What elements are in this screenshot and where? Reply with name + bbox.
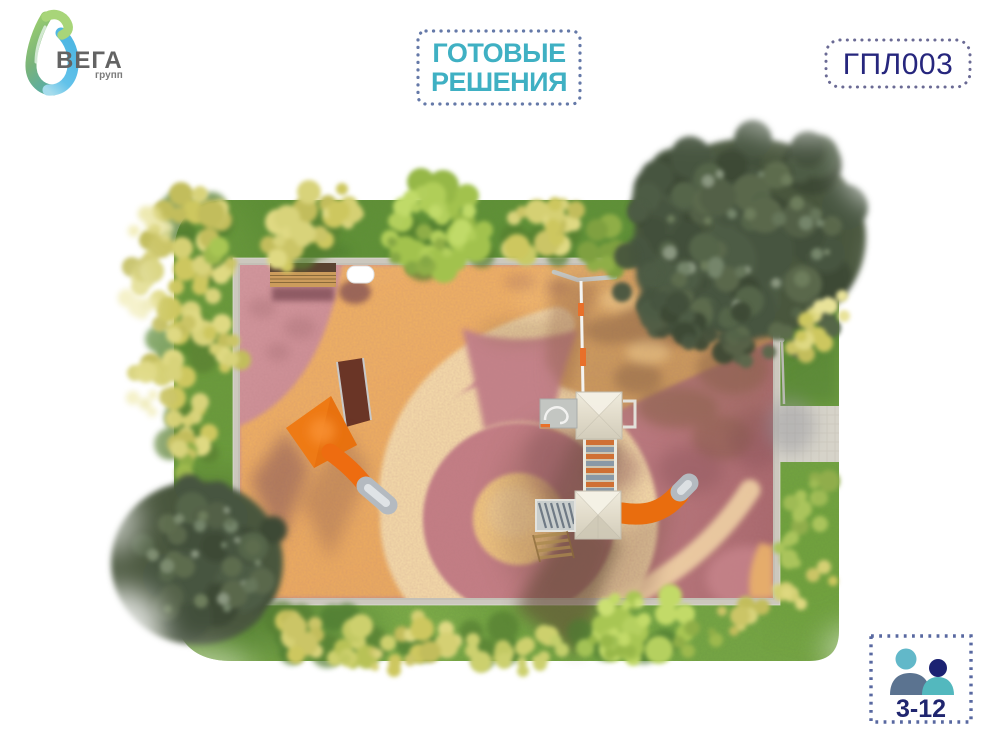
svg-text:РЕШЕНИЯ: РЕШЕНИЯ [431,67,567,97]
svg-text:ГПЛ003: ГПЛ003 [843,48,954,81]
svg-text:3-12: 3-12 [896,695,946,723]
svg-text:групп: групп [95,70,123,81]
svg-text:ГОТОВЫЕ: ГОТОВЫЕ [432,38,565,68]
